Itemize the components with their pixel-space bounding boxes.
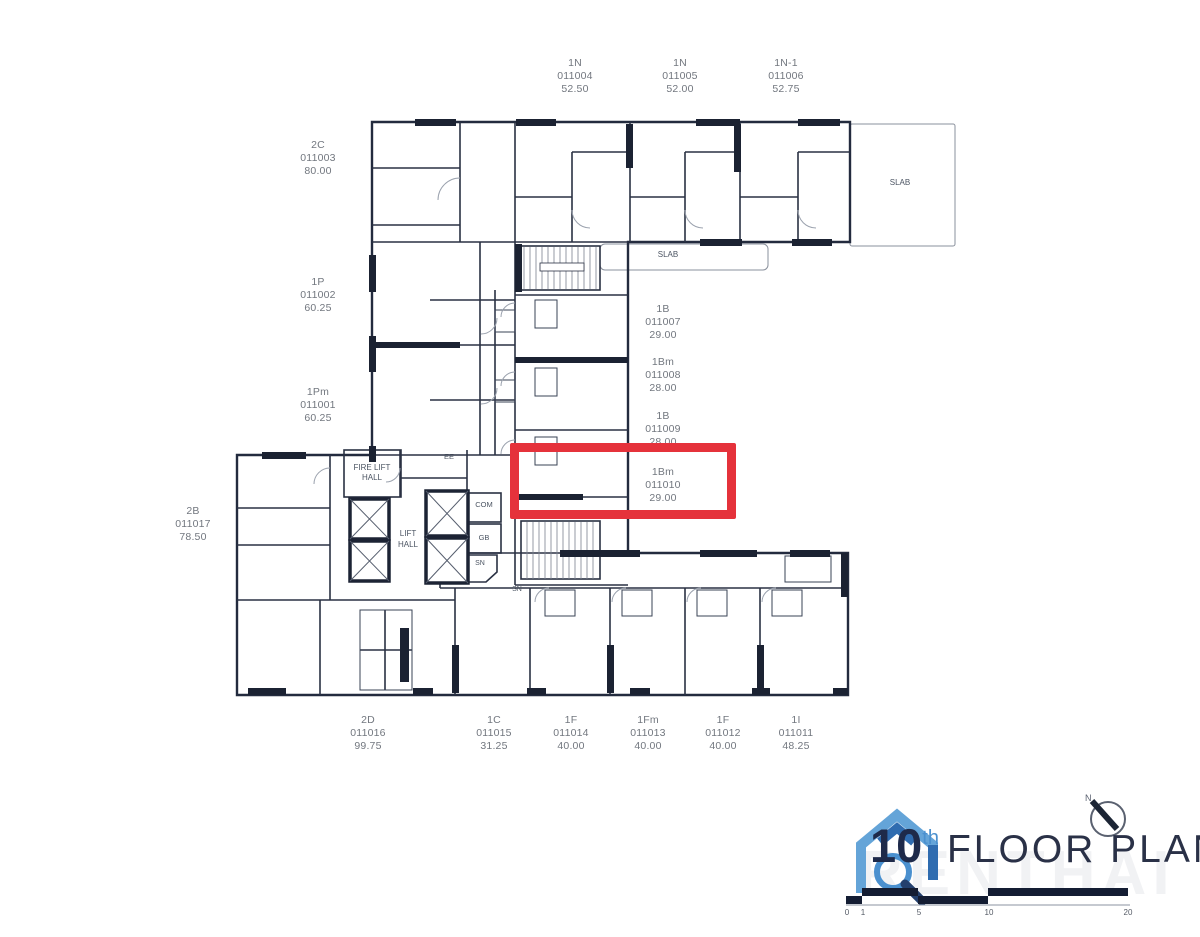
unit-label-011006: 1N-101100652.75 xyxy=(768,57,803,96)
sn-label-upper: SN xyxy=(475,560,485,567)
floor-plan-title: 10thFLOOR PLAN xyxy=(870,818,1200,873)
unit-label-011010-highlighted: 1Bm01101029.00 xyxy=(645,466,680,505)
shear-walls xyxy=(248,119,848,695)
unit-label-011001: 1Pm01100160.25 xyxy=(300,386,335,425)
highlight-box-unit-011010 xyxy=(510,443,736,519)
ee-label: EE xyxy=(444,452,454,461)
scale-bar xyxy=(846,888,1130,905)
unit-label-011003: 2C01100380.00 xyxy=(300,139,335,178)
scale-tick-10: 10 xyxy=(985,908,994,917)
sn-label-lower: SN xyxy=(512,586,522,593)
floor-ordinal: th xyxy=(922,827,939,849)
unit-label-011015: 1C01101531.25 xyxy=(476,714,511,753)
unit-label-011014: 1F01101440.00 xyxy=(553,714,588,753)
scale-tick-5: 5 xyxy=(917,908,921,917)
scale-tick-20: 20 xyxy=(1124,908,1133,917)
unit-label-011011: 1I01101148.25 xyxy=(779,714,814,753)
unit-label-011012: 1F01101240.00 xyxy=(705,714,740,753)
unit-label-011016: 2D01101699.75 xyxy=(350,714,385,753)
unit-label-011004: 1N01100452.50 xyxy=(557,57,592,96)
unit-label-011008: 1Bm01100828.00 xyxy=(645,356,680,395)
unit-label-011005: 1N01100552.00 xyxy=(662,57,697,96)
floor-plan-page: 1N01100452.50 1N01100552.00 1N-101100652… xyxy=(0,0,1200,937)
unit-label-011002: 1P01100260.25 xyxy=(300,276,335,315)
unit-label-011013: 1Fm01101340.00 xyxy=(630,714,665,753)
gb-label: GB xyxy=(479,533,490,542)
north-label: N xyxy=(1085,793,1092,803)
slab-label-upper: SLAB xyxy=(890,178,910,187)
stairs xyxy=(518,246,600,579)
fire-lift-hall-label: FIRE LIFT HALL xyxy=(345,463,399,483)
slab-label-lower: SLAB xyxy=(658,250,678,259)
floor-plan-text: FLOOR PLAN xyxy=(947,828,1200,871)
com-label: COM xyxy=(475,500,493,509)
unit-label-011007: 1B01100729.00 xyxy=(645,303,680,342)
unit-label-011017: 2B01101778.50 xyxy=(175,505,210,544)
scale-tick-1: 1 xyxy=(861,908,865,917)
lift-hall-label: LIFT HALL xyxy=(393,528,423,550)
title-block: RENTHAI N xyxy=(840,790,1170,925)
scale-tick-0: 0 xyxy=(845,908,849,917)
floor-number: 10 xyxy=(870,819,922,872)
